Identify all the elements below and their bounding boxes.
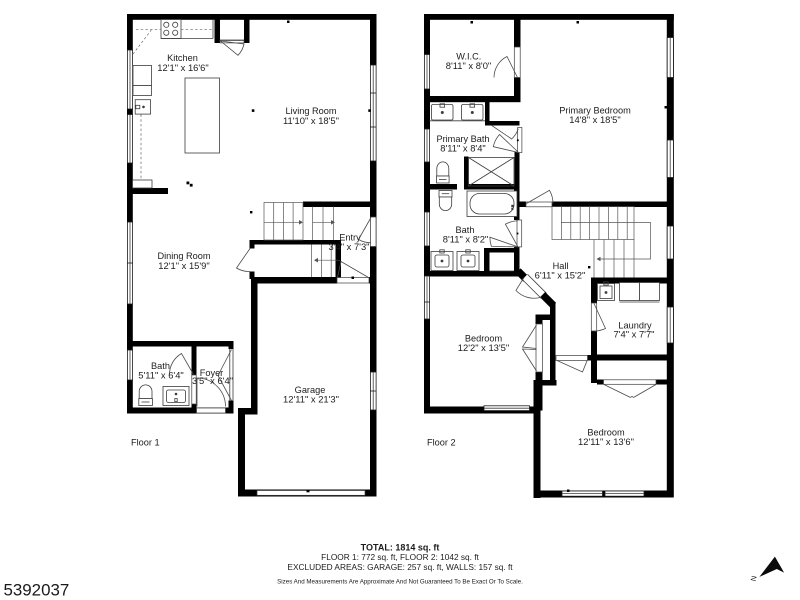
svg-text:8'11" x 8'2": 8'11" x 8'2" — [443, 234, 489, 245]
svg-text:5'11" x 6'4": 5'11" x 6'4" — [138, 370, 184, 381]
svg-text:6'11" x 15'2": 6'11" x 15'2" — [535, 270, 586, 281]
svg-text:5392037: 5392037 — [4, 581, 70, 600]
svg-text:3'5" x 6'4": 3'5" x 6'4" — [192, 375, 233, 386]
svg-text:12'1" x 15'9": 12'1" x 15'9" — [158, 260, 209, 271]
svg-text:3'4" x 7'3": 3'4" x 7'3" — [329, 241, 370, 252]
svg-text:14'8" x 18'5": 14'8" x 18'5" — [569, 114, 620, 125]
svg-text:12'2" x 13'5": 12'2" x 13'5" — [458, 342, 509, 353]
svg-text:Floor 2: Floor 2 — [427, 438, 456, 448]
svg-text:12'11" x 13'6": 12'11" x 13'6" — [578, 436, 634, 447]
svg-text:8'11" x 8'4": 8'11" x 8'4" — [440, 143, 486, 154]
svg-text:EXCLUDED AREAS: GARAGE: 257 sq: EXCLUDED AREAS: GARAGE: 257 sq. ft, WALL… — [287, 562, 513, 572]
svg-text:8'11" x 8'0": 8'11" x 8'0" — [446, 60, 492, 71]
svg-text:12'11" x 21'3": 12'11" x 21'3" — [283, 394, 339, 405]
svg-text:12'1" x 16'6": 12'1" x 16'6" — [157, 62, 208, 73]
svg-text:Sizes And Measurements Are App: Sizes And Measurements Are Approximate A… — [277, 579, 523, 586]
svg-text:11'10" x 18'5": 11'10" x 18'5" — [283, 115, 339, 126]
svg-text:7'4" x 7'7": 7'4" x 7'7" — [614, 329, 655, 340]
svg-text:TOTAL: 1814 sq. ft: TOTAL: 1814 sq. ft — [361, 543, 440, 553]
svg-text:Floor 1: Floor 1 — [131, 438, 160, 448]
svg-text:FLOOR 1: 772 sq. ft, FLOOR 2:: FLOOR 1: 772 sq. ft, FLOOR 2: 1042 sq. f… — [321, 552, 479, 562]
